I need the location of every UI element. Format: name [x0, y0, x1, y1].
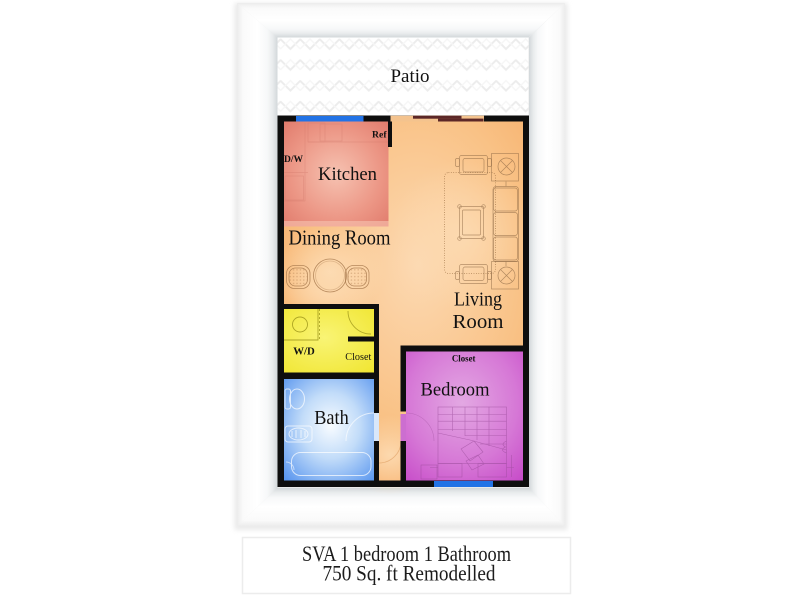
svg-text:Closet: Closet: [345, 352, 371, 363]
svg-text:Bath: Bath: [314, 407, 349, 429]
svg-text:Ref: Ref: [372, 131, 387, 141]
svg-text:Closet: Closet: [452, 355, 476, 365]
svg-text:Patio: Patio: [391, 66, 430, 87]
svg-text:Kitchen: Kitchen: [318, 164, 377, 185]
svg-text:Bedroom: Bedroom: [421, 380, 490, 401]
svg-text:750 Sq. ft Remodelled: 750 Sq. ft Remodelled: [323, 561, 496, 586]
svg-text:D/W: D/W: [284, 155, 304, 165]
svg-text:Dining Room: Dining Room: [289, 226, 391, 250]
svg-text:Room: Room: [453, 311, 504, 333]
svg-text:Living: Living: [454, 289, 502, 311]
svg-text:W/D: W/D: [293, 347, 315, 358]
